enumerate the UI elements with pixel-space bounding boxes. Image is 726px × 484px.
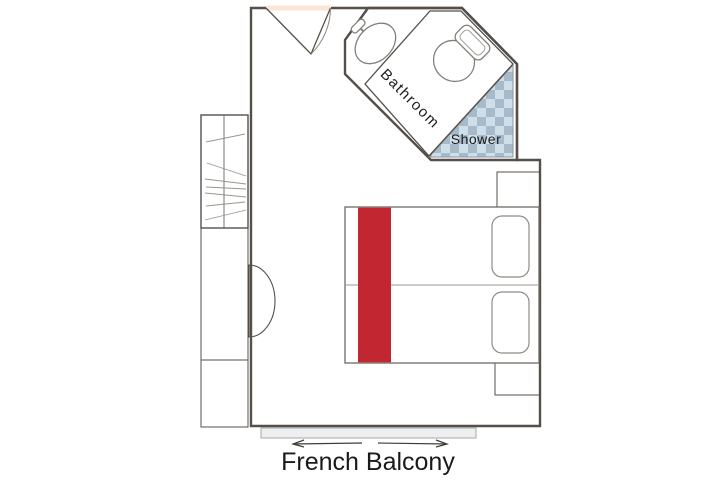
door-slide-arrow-right bbox=[378, 440, 447, 447]
floor-plan: Bathroom Shower French Balcony bbox=[0, 0, 726, 484]
closet-left-lower bbox=[201, 360, 248, 427]
bed-runner bbox=[358, 208, 391, 363]
floor-plan-svg: Bathroom Shower French Balcony bbox=[0, 0, 726, 484]
bathroom-label: Bathroom bbox=[377, 66, 444, 133]
bathroom-unit: Bathroom Shower bbox=[339, 7, 517, 160]
closet-left-upper bbox=[201, 228, 248, 360]
entry-door-leaf bbox=[266, 8, 331, 54]
nightstand-right-lower bbox=[495, 362, 540, 395]
entry-door-swing bbox=[266, 8, 331, 54]
pillow-top bbox=[492, 216, 529, 277]
sink-icon bbox=[339, 7, 403, 71]
plan-title: French Balcony bbox=[281, 448, 455, 476]
bed bbox=[345, 207, 539, 363]
wardrobe bbox=[201, 115, 248, 228]
stool bbox=[249, 265, 275, 337]
pillow-bottom bbox=[492, 292, 529, 353]
door-slide-arrow-left bbox=[293, 440, 362, 447]
wardrobe-hatch bbox=[205, 134, 246, 220]
shower-label: Shower bbox=[451, 131, 501, 147]
balcony-door-arrows bbox=[293, 440, 447, 447]
balcony-sill bbox=[261, 428, 476, 438]
nightstand-right-upper bbox=[497, 172, 540, 207]
